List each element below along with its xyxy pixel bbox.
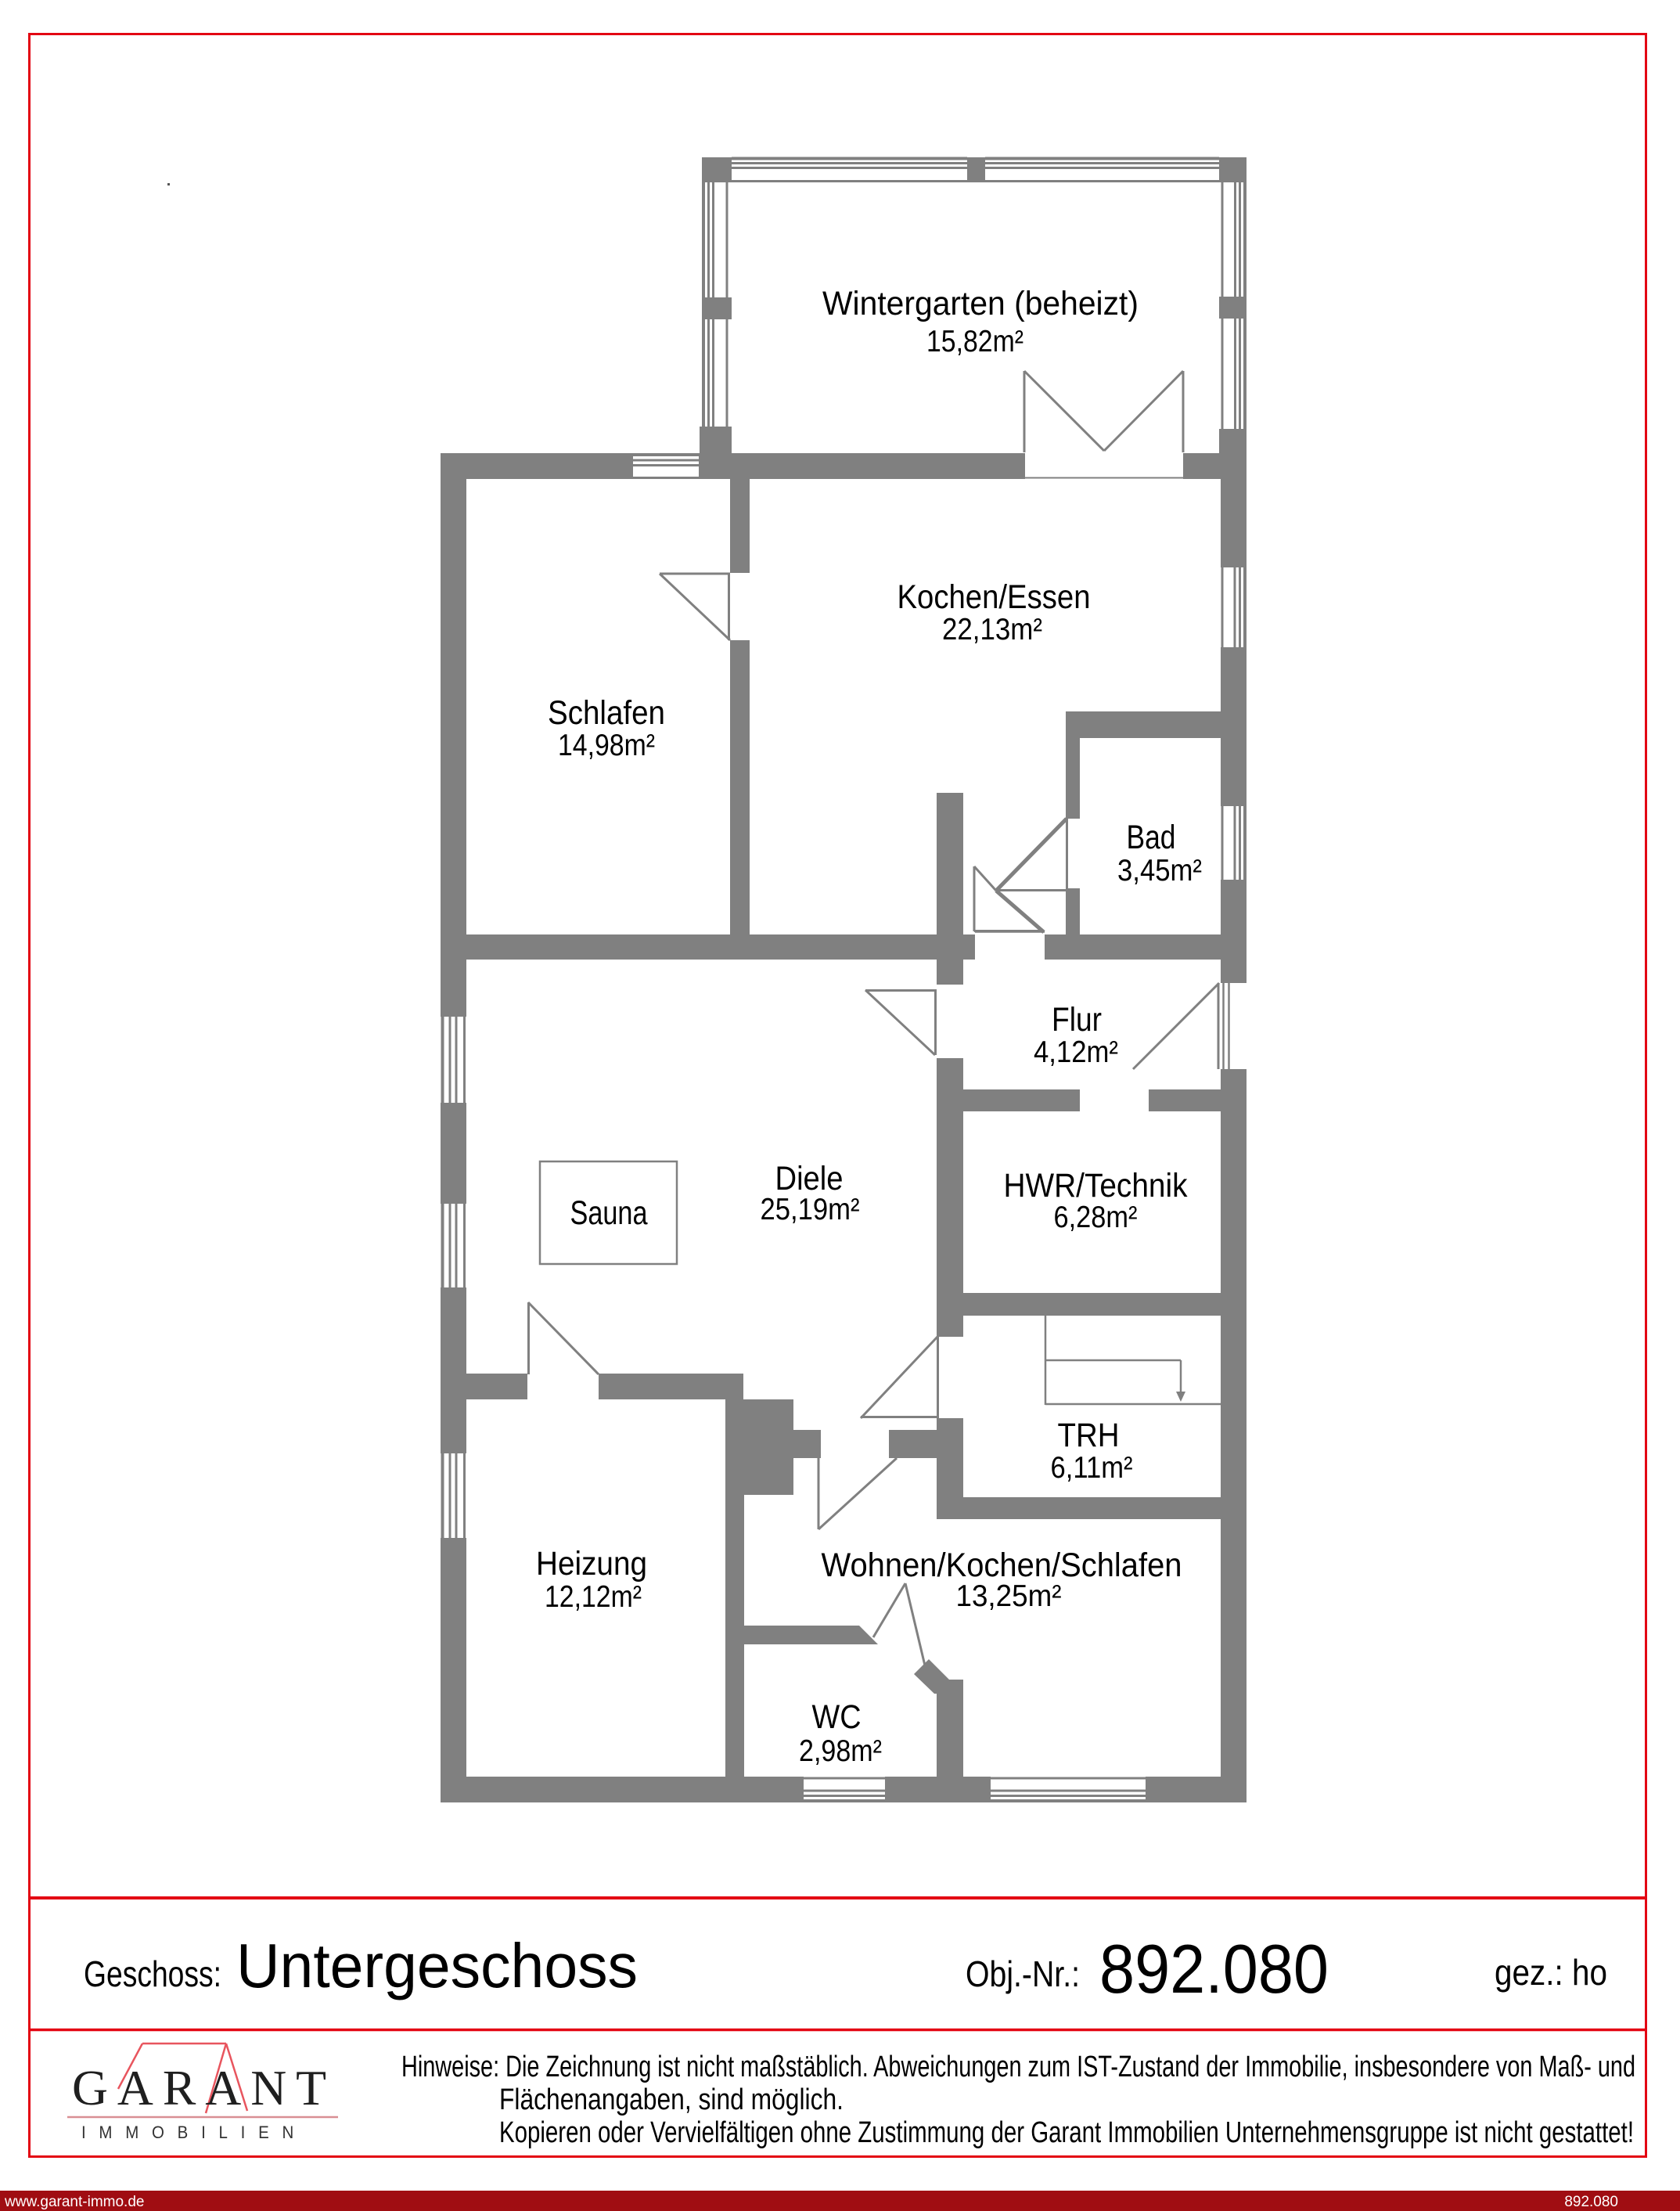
svg-text:Flächenangaben, sind möglich.: Flächenangaben, sind möglich. xyxy=(499,2083,844,2116)
svg-text:2,98m²: 2,98m² xyxy=(799,1734,882,1768)
svg-text:22,13m²: 22,13m² xyxy=(942,613,1042,646)
svg-text:Flur: Flur xyxy=(1052,1001,1102,1039)
svg-text:Wohnen/Kochen/Schlafen: Wohnen/Kochen/Schlafen xyxy=(822,1547,1182,1584)
svg-text:Bad: Bad xyxy=(1127,819,1176,856)
svg-text:14,98m²: 14,98m² xyxy=(558,729,655,762)
svg-text:3,45m²: 3,45m² xyxy=(1117,854,1202,888)
svg-text:Schlafen: Schlafen xyxy=(548,694,665,732)
svg-text:gez.: ho: gez.: ho xyxy=(1495,1952,1607,1993)
svg-text:Diele: Diele xyxy=(775,1160,844,1197)
svg-text:Sauna: Sauna xyxy=(570,1194,648,1232)
svg-text:892.080: 892.080 xyxy=(1564,2194,1618,2210)
svg-text:12,12m²: 12,12m² xyxy=(545,1580,642,1614)
svg-text:Heizung: Heizung xyxy=(536,1545,647,1583)
svg-text:4,12m²: 4,12m² xyxy=(1034,1035,1118,1069)
svg-text:13,25m²: 13,25m² xyxy=(956,1579,1062,1613)
svg-text:Kochen/Essen: Kochen/Essen xyxy=(898,578,1091,616)
svg-text:www.garant-immo.de: www.garant-immo.de xyxy=(4,2194,144,2210)
svg-text:6,28m²: 6,28m² xyxy=(1054,1201,1138,1234)
svg-text:Hinweise: Die Zeichnung ist ni: Hinweise: Die Zeichnung ist nicht maßstä… xyxy=(401,2051,1635,2083)
svg-text:15,82m²: 15,82m² xyxy=(926,325,1023,358)
svg-text:GARANT: GARANT xyxy=(72,2060,336,2116)
svg-text:HWR/Technik: HWR/Technik xyxy=(1004,1167,1188,1205)
svg-text:6,11m²: 6,11m² xyxy=(1051,1451,1133,1485)
svg-text:IMMOBILIEN: IMMOBILIEN xyxy=(81,2123,307,2142)
svg-text:Untergeschoss: Untergeschoss xyxy=(236,1931,638,2000)
svg-text:Geschoss:: Geschoss: xyxy=(84,1954,221,1994)
svg-text:Wintergarten (beheizt): Wintergarten (beheizt) xyxy=(822,285,1139,322)
svg-text:Obj.-Nr.:: Obj.-Nr.: xyxy=(966,1954,1080,1994)
svg-text:25,19m²: 25,19m² xyxy=(761,1193,860,1226)
svg-text:892.080: 892.080 xyxy=(1099,1930,1329,2008)
svg-text:Kopieren oder Vervielfältigen: Kopieren oder Vervielfältigen ohne Zusti… xyxy=(499,2116,1634,2149)
svg-text:TRH: TRH xyxy=(1058,1417,1120,1454)
svg-text:WC: WC xyxy=(812,1698,862,1736)
